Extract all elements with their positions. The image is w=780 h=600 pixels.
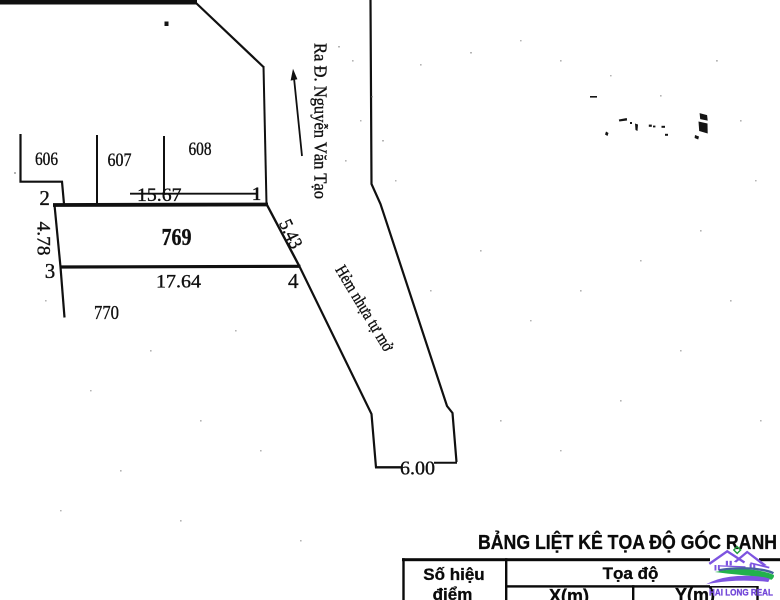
svg-text:17.64: 17.64 xyxy=(156,272,202,293)
svg-text:606: 606 xyxy=(35,149,58,170)
svg-text:4: 4 xyxy=(288,269,299,293)
svg-text:BẢNG LIỆT KÊ TỌA ĐỘ GÓC RANH: BẢNG LIỆT KÊ TỌA ĐỘ GÓC RANH xyxy=(478,530,777,554)
svg-text:Hẻm nhựa tự mở: Hẻm nhựa tự mở xyxy=(331,262,398,356)
svg-text:3: 3 xyxy=(45,259,56,283)
svg-text:X(m): X(m) xyxy=(549,586,589,600)
svg-text:điểm: điểm xyxy=(433,585,473,600)
svg-text:Ra Đ. Nguyễn Văn Tạo: Ra Đ. Nguyễn Văn Tạo xyxy=(311,43,331,199)
svg-text:769: 769 xyxy=(162,224,192,251)
svg-text:4.78: 4.78 xyxy=(33,222,54,256)
svg-text:608: 608 xyxy=(189,139,212,160)
svg-text:607: 607 xyxy=(108,150,132,171)
svg-text:Tọa độ: Tọa độ xyxy=(603,564,659,583)
svg-text:5.43: 5.43 xyxy=(274,216,306,252)
svg-text:770: 770 xyxy=(94,302,119,324)
svg-text:1: 1 xyxy=(252,184,262,205)
svg-text:HAI LONG REAL: HAI LONG REAL xyxy=(709,587,773,598)
svg-text:Số hiệu: Số hiệu xyxy=(423,565,484,584)
svg-text:6.00: 6.00 xyxy=(400,458,435,480)
svg-text:2: 2 xyxy=(39,186,50,210)
